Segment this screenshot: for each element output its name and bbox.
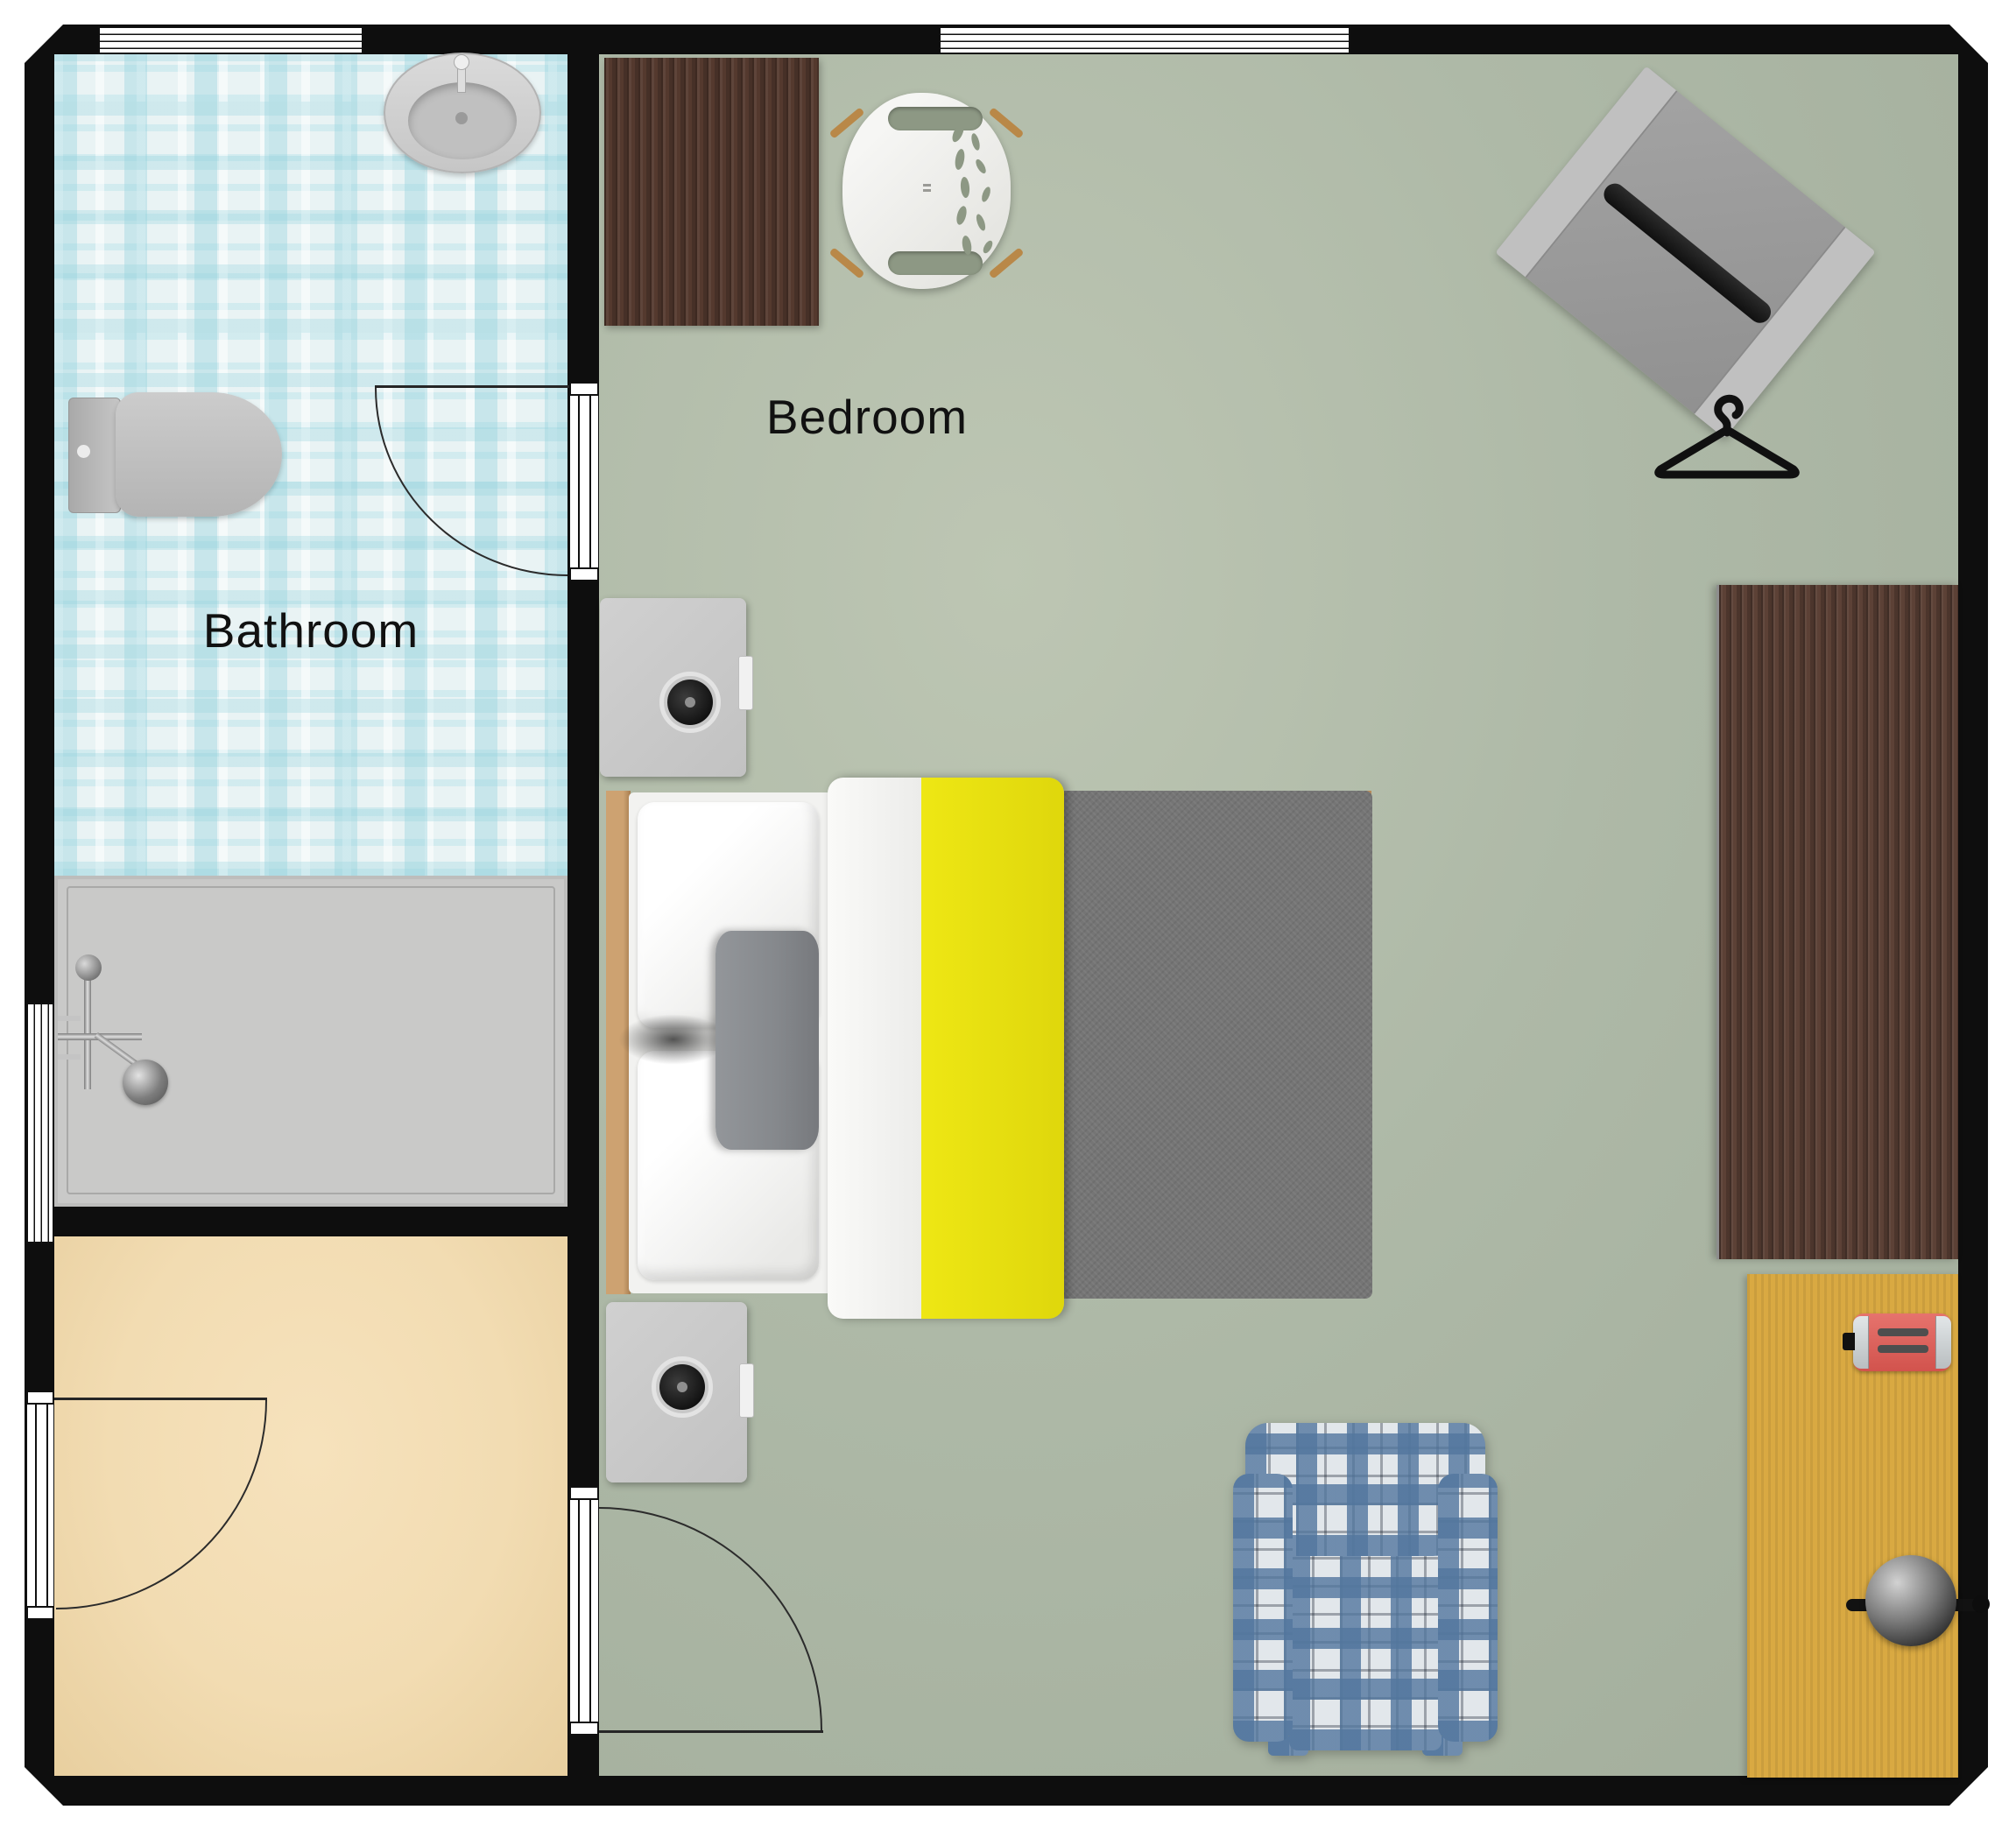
toaster[interactable] bbox=[1853, 1313, 1951, 1371]
nightstand-handle bbox=[738, 656, 753, 710]
tv-screen bbox=[1599, 180, 1775, 327]
sink-drain bbox=[455, 112, 468, 124]
bedroom-door-jamb-bottom bbox=[569, 1722, 599, 1736]
kettle-handle-knob bbox=[1972, 1595, 1990, 1613]
chair-seat bbox=[842, 93, 1011, 289]
nightstand-bottom[interactable] bbox=[606, 1302, 747, 1482]
toaster-end-cap bbox=[1853, 1316, 1869, 1369]
toaster-end-cap bbox=[1935, 1316, 1951, 1369]
accent-pillow bbox=[715, 931, 819, 1150]
window-top-bathroom[interactable] bbox=[98, 26, 363, 54]
entry-door-threshold bbox=[26, 1394, 54, 1616]
wall-bathroom-bedroom-lower bbox=[569, 578, 599, 1489]
bathroom-door-threshold bbox=[569, 385, 599, 578]
wall-bathroom-entry bbox=[54, 1207, 599, 1236]
bedroom-door-jamb-top bbox=[569, 1486, 599, 1500]
plaid-armchair[interactable] bbox=[1233, 1423, 1498, 1757]
speaker-knob-dot bbox=[685, 697, 695, 708]
speaker-knob-dot bbox=[677, 1382, 687, 1392]
duvet-yellow-fold bbox=[921, 778, 1064, 1319]
toaster-lever bbox=[1843, 1333, 1855, 1350]
desk[interactable] bbox=[604, 58, 819, 326]
toilet[interactable] bbox=[116, 392, 282, 517]
shower-valve-2 bbox=[58, 1054, 81, 1060]
wardrobe[interactable] bbox=[1716, 585, 1958, 1259]
shower-floor[interactable] bbox=[54, 876, 567, 1207]
wall-entry-bedroom-stub bbox=[569, 1734, 599, 1776]
bathroom-label: Bathroom bbox=[171, 602, 451, 658]
kettle[interactable] bbox=[1865, 1555, 1956, 1646]
sink-faucet-knob bbox=[454, 54, 469, 70]
clothes-hanger-icon[interactable] bbox=[1648, 391, 1806, 480]
bedroom-door-leaf[interactable] bbox=[599, 1730, 823, 1733]
entry-door-jamb-top bbox=[26, 1391, 54, 1405]
shower-head-small bbox=[75, 954, 102, 981]
window-left-wall[interactable] bbox=[26, 1003, 54, 1243]
bed-crease-shadow bbox=[618, 1014, 729, 1065]
desk-chair[interactable] bbox=[823, 88, 1029, 296]
nightstand-top[interactable] bbox=[600, 598, 746, 777]
shower-valve bbox=[58, 1016, 81, 1021]
window-top-bedroom[interactable] bbox=[939, 26, 1350, 54]
shower-tray-outline bbox=[67, 886, 555, 1194]
armchair-armrest bbox=[1438, 1474, 1498, 1742]
bed-blanket bbox=[1064, 791, 1372, 1299]
duvet-white-fold bbox=[828, 778, 921, 1319]
armchair-armrest bbox=[1233, 1474, 1293, 1742]
toilet-flush-button bbox=[77, 445, 90, 458]
toaster-slot bbox=[1878, 1328, 1928, 1336]
bed-duvet bbox=[828, 778, 1064, 1319]
chair-leaf-cutout-pattern bbox=[946, 121, 1004, 261]
wall-bathroom-bedroom-upper bbox=[569, 54, 599, 385]
bedroom-label: Bedroom bbox=[727, 389, 1007, 445]
shower-head[interactable] bbox=[123, 1060, 168, 1105]
bedroom-door-threshold bbox=[569, 1489, 599, 1734]
floor-plan: Bathroom Bedroom bbox=[0, 0, 2016, 1831]
nightstand-handle bbox=[739, 1363, 754, 1418]
entry-door-jamb-bottom bbox=[26, 1606, 54, 1620]
toaster-slot bbox=[1878, 1345, 1928, 1353]
bathroom-door-jamb-bottom bbox=[569, 567, 599, 581]
chair-detail bbox=[923, 184, 931, 187]
bathroom-door-jamb-top bbox=[569, 382, 599, 396]
toilet-tank[interactable] bbox=[68, 398, 121, 513]
armchair-seat bbox=[1289, 1535, 1442, 1750]
